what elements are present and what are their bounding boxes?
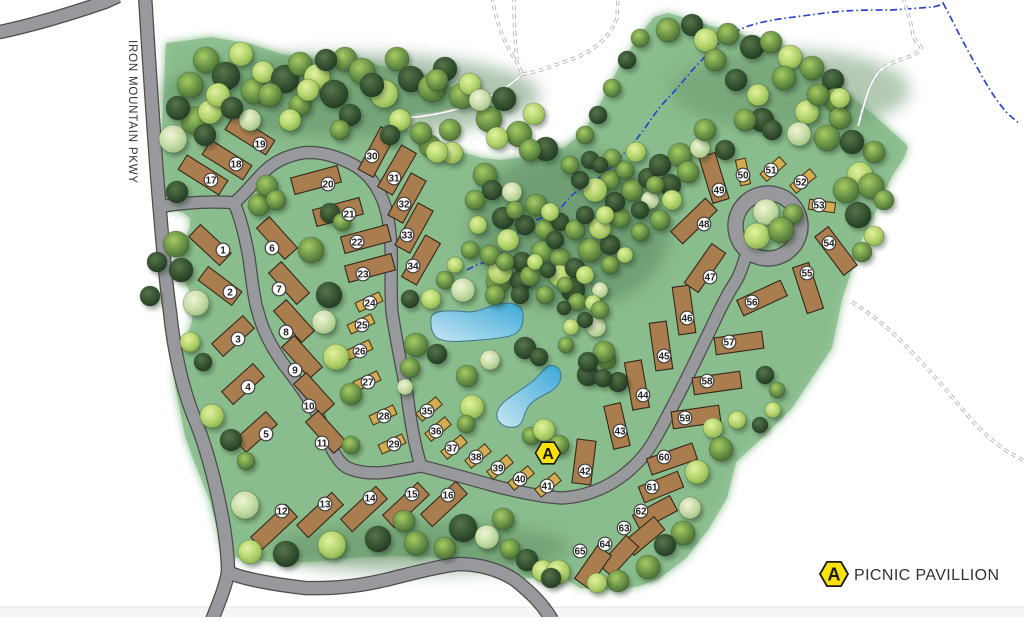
svg-text:49: 49 [713, 185, 725, 196]
svg-text:11: 11 [317, 438, 328, 449]
svg-text:65: 65 [574, 546, 586, 557]
svg-text:1: 1 [220, 245, 226, 256]
svg-text:33: 33 [401, 230, 413, 241]
svg-text:38: 38 [470, 452, 482, 463]
svg-text:35: 35 [421, 406, 433, 417]
svg-text:29: 29 [388, 439, 400, 450]
svg-text:23: 23 [357, 269, 369, 280]
svg-text:18: 18 [230, 159, 242, 170]
svg-text:58: 58 [701, 376, 713, 387]
svg-text:7: 7 [276, 284, 282, 295]
svg-text:62: 62 [635, 506, 647, 517]
svg-text:12: 12 [276, 506, 288, 517]
svg-text:31: 31 [388, 173, 400, 184]
svg-text:8: 8 [283, 327, 289, 338]
svg-text:10: 10 [303, 401, 315, 412]
svg-text:4: 4 [245, 382, 251, 393]
svg-text:24: 24 [364, 298, 376, 309]
svg-text:13: 13 [319, 499, 331, 510]
svg-text:PICNIC PAVILLION: PICNIC PAVILLION [854, 567, 999, 584]
svg-text:19: 19 [254, 139, 266, 150]
svg-text:50: 50 [737, 170, 749, 181]
svg-text:54: 54 [823, 238, 835, 249]
svg-text:40: 40 [514, 474, 526, 485]
svg-text:20: 20 [322, 179, 334, 190]
svg-text:15: 15 [406, 489, 418, 500]
svg-text:30: 30 [366, 151, 378, 162]
svg-text:39: 39 [492, 463, 504, 474]
svg-text:44: 44 [637, 390, 649, 401]
svg-text:22: 22 [351, 237, 363, 248]
svg-text:63: 63 [618, 523, 630, 534]
svg-text:36: 36 [430, 426, 442, 437]
svg-text:64: 64 [599, 539, 611, 550]
svg-text:27: 27 [362, 377, 374, 388]
svg-text:14: 14 [364, 493, 376, 504]
svg-text:6: 6 [269, 243, 275, 254]
svg-text:28: 28 [378, 411, 390, 422]
svg-text:17: 17 [205, 175, 217, 186]
svg-text:55: 55 [801, 268, 813, 279]
svg-text:A: A [828, 565, 841, 585]
svg-text:IRON MOUNTAIN PKWY: IRON MOUNTAIN PKWY [126, 40, 138, 184]
svg-text:37: 37 [446, 443, 458, 454]
svg-text:42: 42 [579, 466, 591, 477]
svg-text:48: 48 [698, 219, 710, 230]
svg-text:2: 2 [227, 287, 233, 298]
svg-text:59: 59 [679, 413, 691, 424]
svg-text:53: 53 [813, 200, 825, 211]
svg-text:47: 47 [704, 272, 716, 283]
svg-text:34: 34 [407, 261, 419, 272]
svg-text:3: 3 [235, 334, 241, 345]
svg-text:16: 16 [442, 490, 454, 501]
svg-text:45: 45 [658, 351, 670, 362]
svg-text:43: 43 [614, 426, 626, 437]
svg-text:57: 57 [723, 337, 735, 348]
svg-text:A: A [542, 446, 554, 463]
svg-text:52: 52 [795, 177, 807, 188]
svg-text:56: 56 [746, 297, 758, 308]
svg-text:61: 61 [646, 482, 658, 493]
svg-text:32: 32 [398, 199, 410, 210]
svg-text:46: 46 [681, 313, 693, 324]
svg-text:21: 21 [343, 209, 355, 220]
svg-text:26: 26 [354, 346, 366, 357]
svg-text:41: 41 [541, 481, 553, 492]
svg-text:9: 9 [292, 365, 298, 376]
svg-text:25: 25 [356, 320, 368, 331]
svg-text:60: 60 [658, 452, 670, 463]
svg-text:51: 51 [765, 165, 777, 176]
svg-text:5: 5 [263, 429, 269, 440]
